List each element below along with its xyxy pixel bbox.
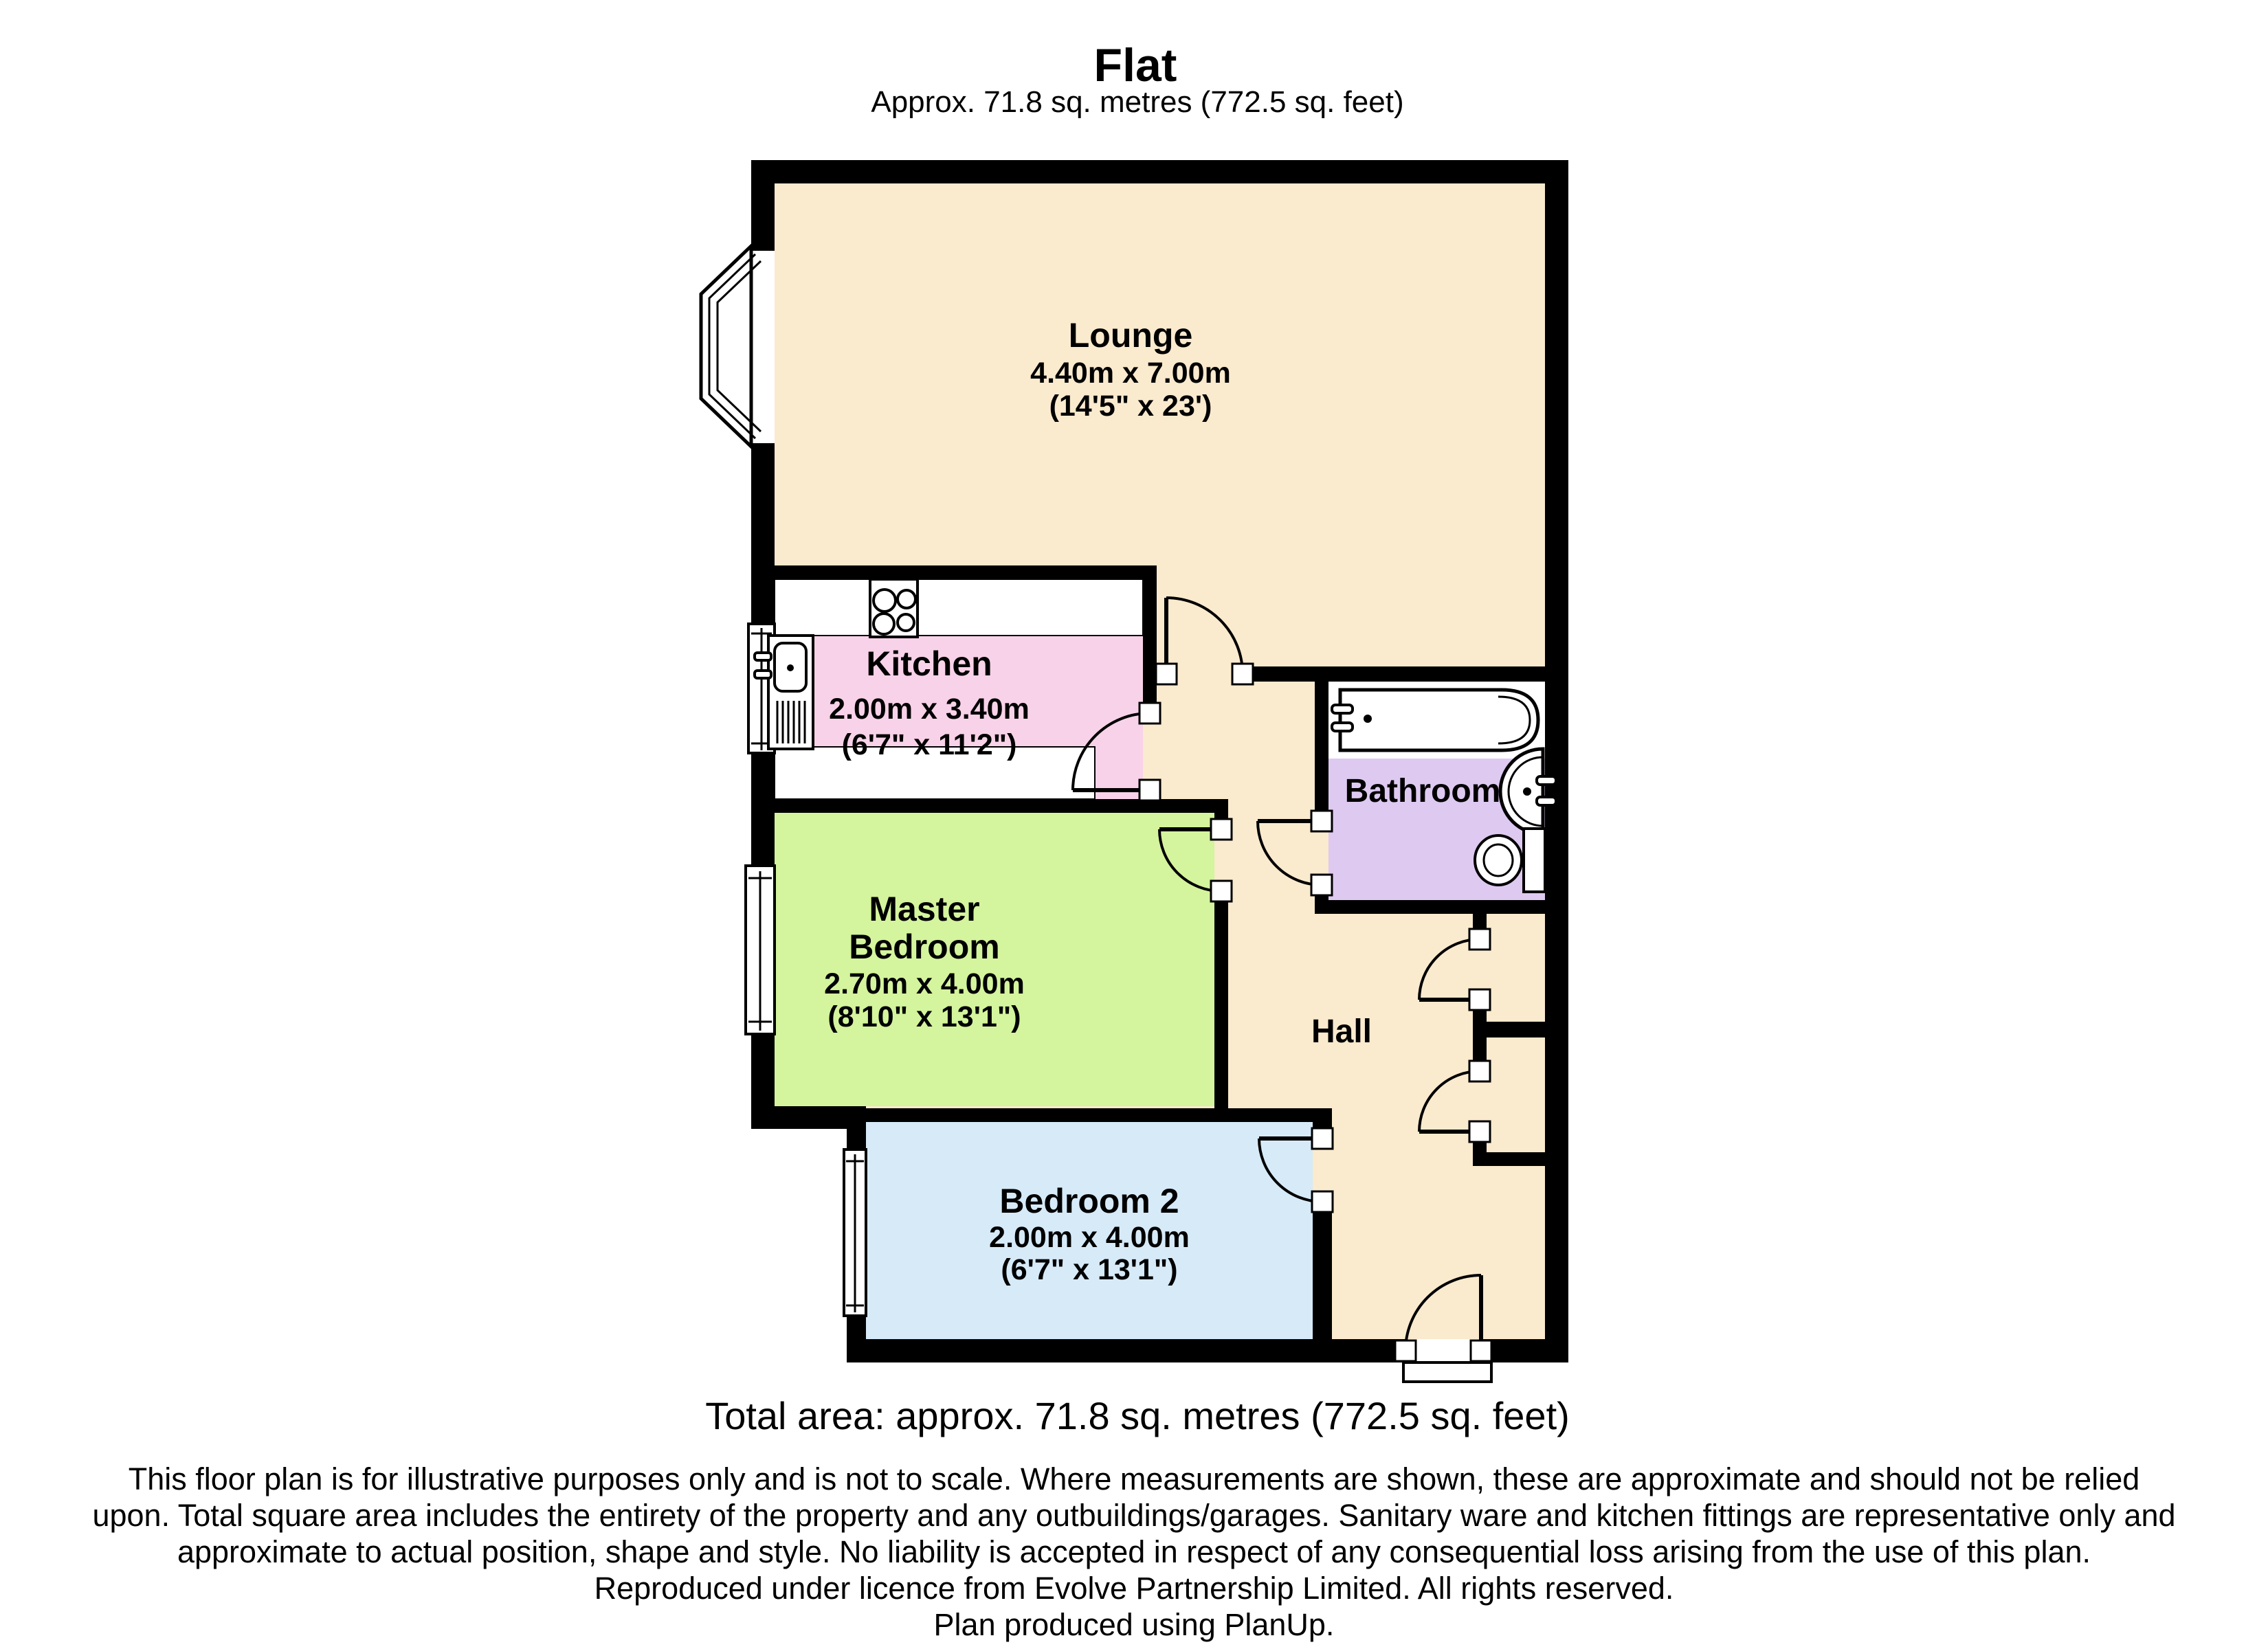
master-bedroom-window (746, 866, 775, 1034)
lounge-name: Lounge (1069, 316, 1193, 355)
total-area-text: Total area: approx. 71.8 sq. metres (772… (705, 1394, 1570, 1437)
page-subtitle: Approx. 71.8 sq. metres (772.5 sq. feet) (871, 85, 1403, 119)
hall-label: Hall (1311, 1013, 1372, 1050)
floor-plan-svg: Flat Approx. 71.8 sq. metres (772.5 sq. … (0, 0, 2268, 1649)
door-post (1312, 1191, 1333, 1212)
lounge-metric: 4.40m x 7.00m (1030, 357, 1231, 390)
door-post (1469, 1061, 1490, 1081)
door-post (1232, 664, 1253, 684)
door-post (1312, 1128, 1333, 1149)
master-name-line1: Master (869, 890, 979, 928)
bedroom2-name: Bedroom 2 (999, 1182, 1179, 1220)
page-title: Flat (1094, 39, 1177, 91)
basin-tap (1537, 797, 1556, 805)
door-post (1471, 1340, 1491, 1361)
bedroom2-imperial: (6'7" x 13'1") (1001, 1253, 1177, 1286)
entrance-threshold (1403, 1362, 1491, 1382)
door-post (1469, 929, 1490, 950)
kitchen-name: Kitchen (866, 644, 992, 683)
toilet-icon (1475, 829, 1545, 892)
door-post (1211, 819, 1232, 840)
bathroom-label: Bathroom (1345, 773, 1501, 809)
sink-tap (755, 653, 771, 660)
master-imperial: (8'10" x 13'1") (827, 1000, 1021, 1033)
door-post (1469, 1121, 1490, 1142)
disclaimer-line: upon. Total square area includes the ent… (92, 1498, 2175, 1533)
master-name-line2: Bedroom (849, 928, 999, 966)
bedroom2-metric: 2.00m x 4.00m (989, 1221, 1190, 1254)
door-post (1139, 703, 1160, 723)
kitchen-metric: 2.00m x 3.40m (829, 693, 1030, 726)
basin-drain (1523, 787, 1531, 796)
disclaimer-line: approximate to actual position, shape an… (177, 1534, 2091, 1569)
disclaimer: This floor plan is for illustrative purp… (92, 1461, 2175, 1642)
header: Flat Approx. 71.8 sq. metres (772.5 sq. … (871, 39, 1403, 119)
master-metric: 2.70m x 4.00m (824, 967, 1025, 1000)
toilet-bowl (1475, 835, 1522, 885)
bedroom2-window (844, 1149, 866, 1316)
sink-drain (787, 664, 794, 671)
door-post (1211, 881, 1232, 901)
floor-plan-page: Flat Approx. 71.8 sq. metres (772.5 sq. … (0, 0, 2268, 1649)
disclaimer-line: Reproduced under licence from Evolve Par… (594, 1571, 1674, 1606)
door-post (1311, 811, 1332, 831)
kitchen-counter-top (775, 579, 1143, 636)
bath-icon (1332, 690, 1538, 750)
sink-tap (755, 671, 771, 678)
toilet-cistern (1524, 829, 1545, 892)
door-post (1139, 780, 1160, 800)
door-post (1469, 989, 1490, 1010)
bath-tap (1332, 705, 1353, 713)
basin-tap (1537, 776, 1556, 785)
hob-icon (870, 579, 918, 637)
disclaimer-line: This floor plan is for illustrative purp… (129, 1461, 2140, 1496)
disclaimer-line: Plan produced using PlanUp. (934, 1607, 1335, 1642)
bath-tap (1332, 723, 1353, 731)
door-post (1156, 664, 1177, 684)
bay-window (701, 246, 761, 447)
door-post (1311, 875, 1332, 895)
bath-drain (1364, 715, 1372, 723)
door-post (1395, 1340, 1416, 1361)
kitchen-imperial: (6'7" x 11'2") (842, 728, 1017, 761)
lounge-imperial: (14'5" x 23') (1049, 390, 1212, 423)
bedroom2-label: Bedroom 2 2.00m x 4.00m (6'7" x 13'1") (989, 1182, 1190, 1286)
